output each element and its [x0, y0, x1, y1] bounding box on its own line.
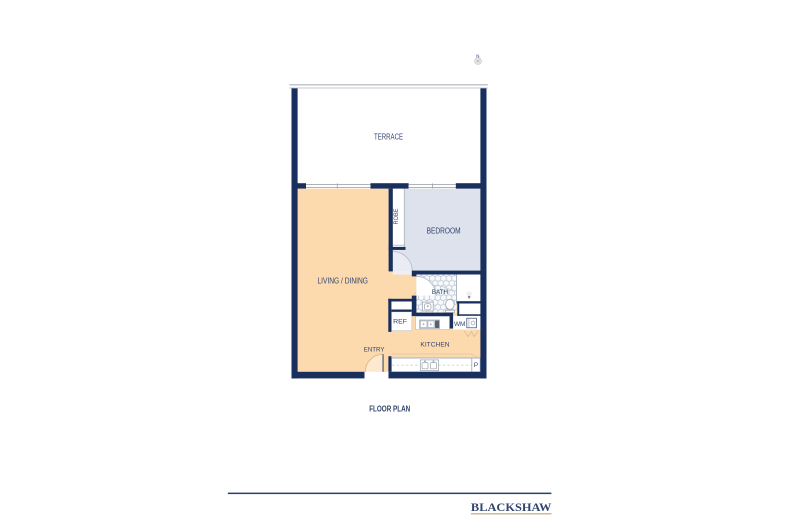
- svg-text:BATH: BATH: [432, 289, 448, 296]
- svg-text:N: N: [476, 53, 479, 58]
- svg-text:LIVING / DINING: LIVING / DINING: [317, 275, 368, 285]
- svg-text:ROBE: ROBE: [393, 208, 400, 225]
- svg-text:FLOOR PLAN: FLOOR PLAN: [369, 404, 410, 413]
- svg-text:TERRACE: TERRACE: [374, 131, 403, 141]
- svg-text:ENTRY: ENTRY: [364, 347, 385, 354]
- svg-text:P: P: [474, 362, 478, 369]
- svg-text:REF: REF: [393, 319, 407, 326]
- svg-text:BLACKSHAW: BLACKSHAW: [471, 501, 552, 514]
- svg-text:BEDROOM: BEDROOM: [427, 226, 461, 236]
- svg-text:KITCHEN: KITCHEN: [420, 341, 449, 348]
- svg-text:WM: WM: [454, 321, 466, 328]
